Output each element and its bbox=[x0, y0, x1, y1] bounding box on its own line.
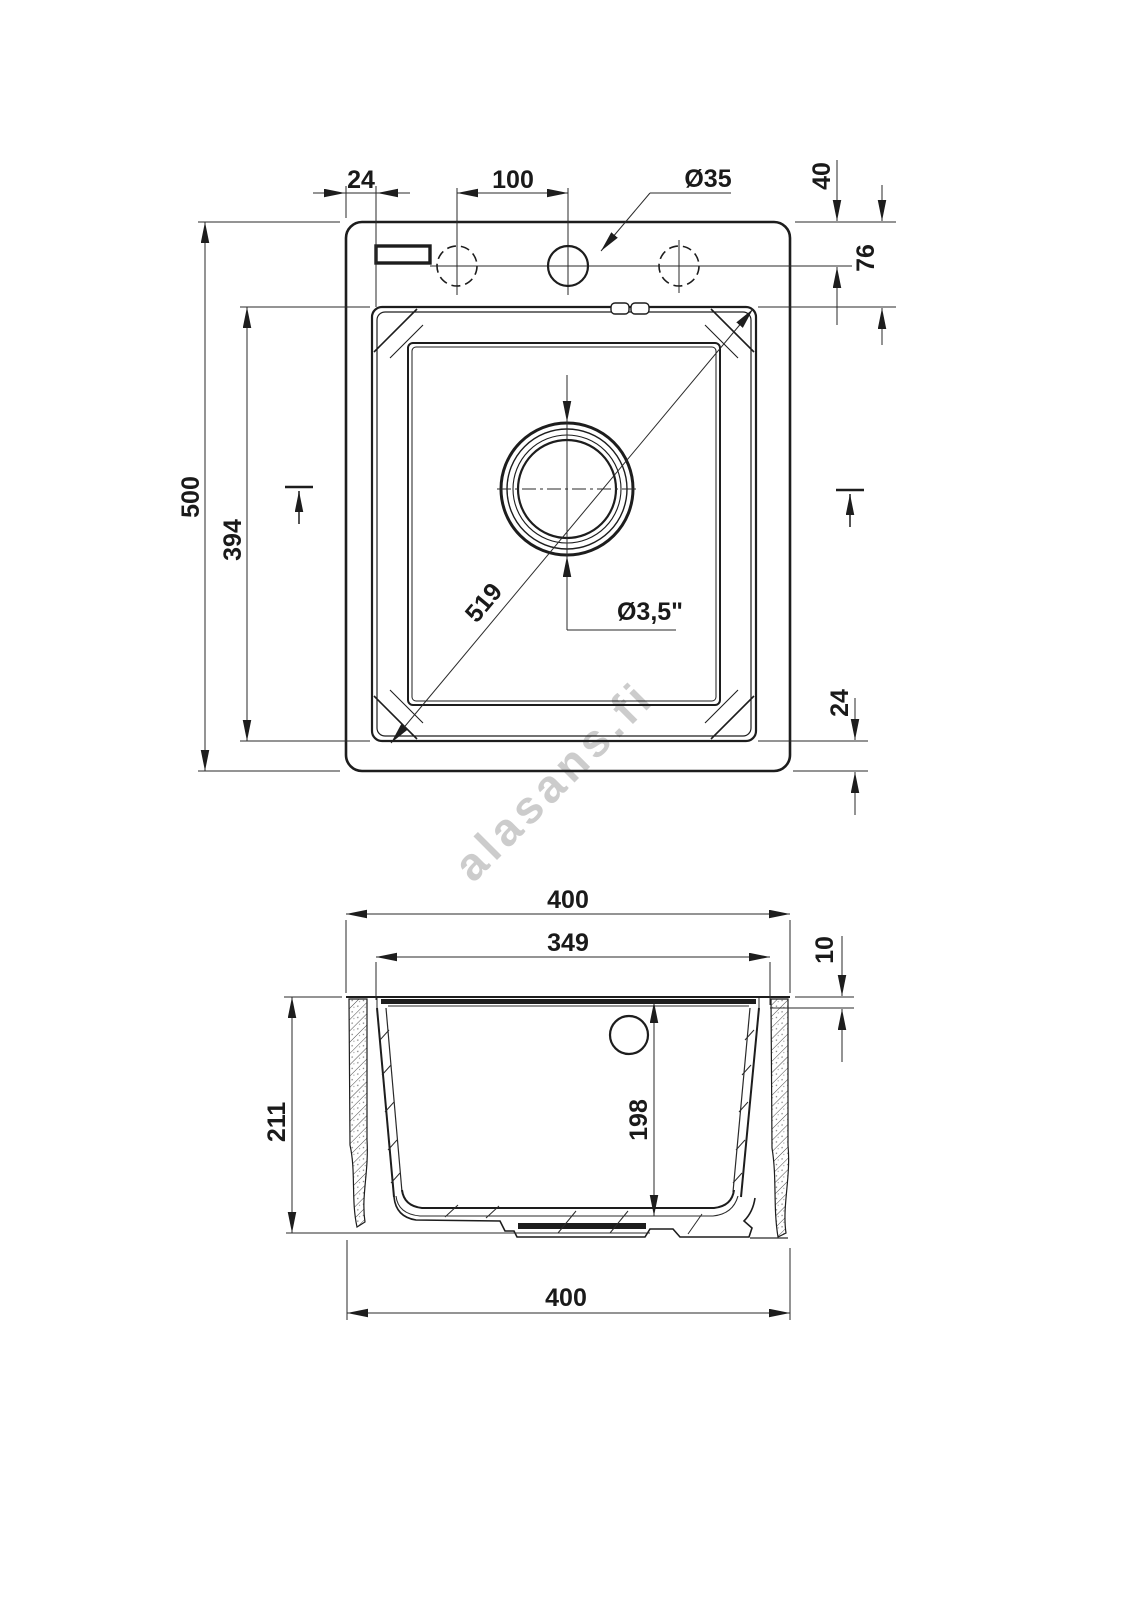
section-shell-ticks bbox=[380, 1030, 754, 1234]
section-view: 400 349 10 211 198 400 bbox=[263, 886, 854, 1320]
bowl-corner-chamfers bbox=[374, 309, 754, 739]
dim-overall-depth bbox=[284, 997, 650, 1233]
dim-label-bowl-diagonal: 519 bbox=[460, 578, 508, 628]
dim-overall-length bbox=[198, 222, 340, 771]
dim-label-bowl-length: 394 bbox=[219, 519, 247, 561]
top-view: Ø3,5" 519 24 100 Ø35 bbox=[177, 160, 896, 815]
dim-label-bowl-depth: 198 bbox=[625, 1099, 653, 1141]
bowl-corner-chamfers-inner bbox=[390, 325, 738, 723]
drain-recess-bar bbox=[518, 1223, 646, 1229]
watermark-text: alasans.fi bbox=[443, 670, 663, 890]
drain-assembly bbox=[497, 375, 676, 630]
bowl-rim-outer bbox=[372, 307, 756, 741]
mounting-clip-mark-right bbox=[836, 490, 864, 527]
bowl-bevel-inner bbox=[412, 347, 716, 701]
dim-label-faucet-hole-diameter: Ø35 bbox=[684, 165, 731, 193]
dim-label-rim-offset-left: 24 bbox=[347, 166, 375, 194]
dim-label-overall-length: 500 bbox=[177, 476, 205, 518]
dim-label-deck-depth: 76 bbox=[852, 244, 880, 272]
section-bowl-walls bbox=[377, 1008, 759, 1197]
dim-label-rim-lip-height: 10 bbox=[811, 936, 839, 964]
sink-outer-edge bbox=[346, 222, 790, 771]
dim-label-rim-offset-bottom: 24 bbox=[826, 689, 854, 717]
section-wall-right bbox=[771, 999, 789, 1237]
dim-bowl-length bbox=[240, 307, 370, 741]
mounting-clip-mark-left bbox=[285, 487, 313, 524]
logo-plate bbox=[376, 246, 430, 263]
drawing-canvas: alasans.fi bbox=[0, 0, 1131, 1600]
dim-label-overall-width-bottom: 400 bbox=[545, 1284, 587, 1312]
sink-technical-drawing: alasans.fi bbox=[0, 0, 1131, 1600]
dim-label-bowl-width: 349 bbox=[547, 929, 589, 957]
dim-line-bowl-diagonal bbox=[391, 309, 753, 743]
dim-label-overall-depth: 211 bbox=[263, 1102, 291, 1142]
dim-label-drain-diameter: Ø3,5" bbox=[617, 598, 683, 626]
section-bowl-bottom bbox=[394, 1190, 788, 1238]
overflow-hole bbox=[610, 1016, 648, 1054]
section-wall-left bbox=[349, 999, 367, 1227]
bowl-rim-inner bbox=[377, 312, 751, 736]
dim-label-hole-offset-top: 40 bbox=[808, 162, 836, 190]
dim-label-overall-width-top: 400 bbox=[547, 886, 589, 914]
bowl-bevel-outer bbox=[408, 343, 720, 705]
dim-label-hole-spacing: 100 bbox=[492, 166, 534, 194]
